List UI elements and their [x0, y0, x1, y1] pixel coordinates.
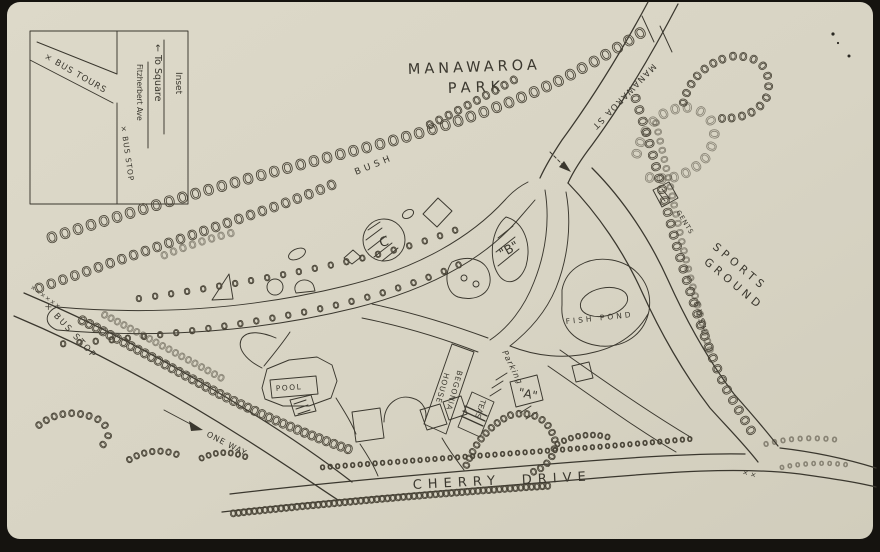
ink-dot [848, 55, 851, 58]
ink-dot [831, 32, 834, 35]
park-map-canvas: Inset ← To Square Fitzherbert Ave × BUS … [0, 0, 880, 552]
pool-label: POOL [276, 382, 303, 393]
ink-dot [837, 42, 839, 44]
inset-heading: Inset [173, 72, 183, 95]
scanned-park-map: Inset ← To Square Fitzherbert Ave × BUS … [0, 0, 880, 552]
inset-street-label: Fitzherbert Ave [135, 64, 144, 121]
inset-to-square-label: ← To Square [152, 44, 163, 102]
